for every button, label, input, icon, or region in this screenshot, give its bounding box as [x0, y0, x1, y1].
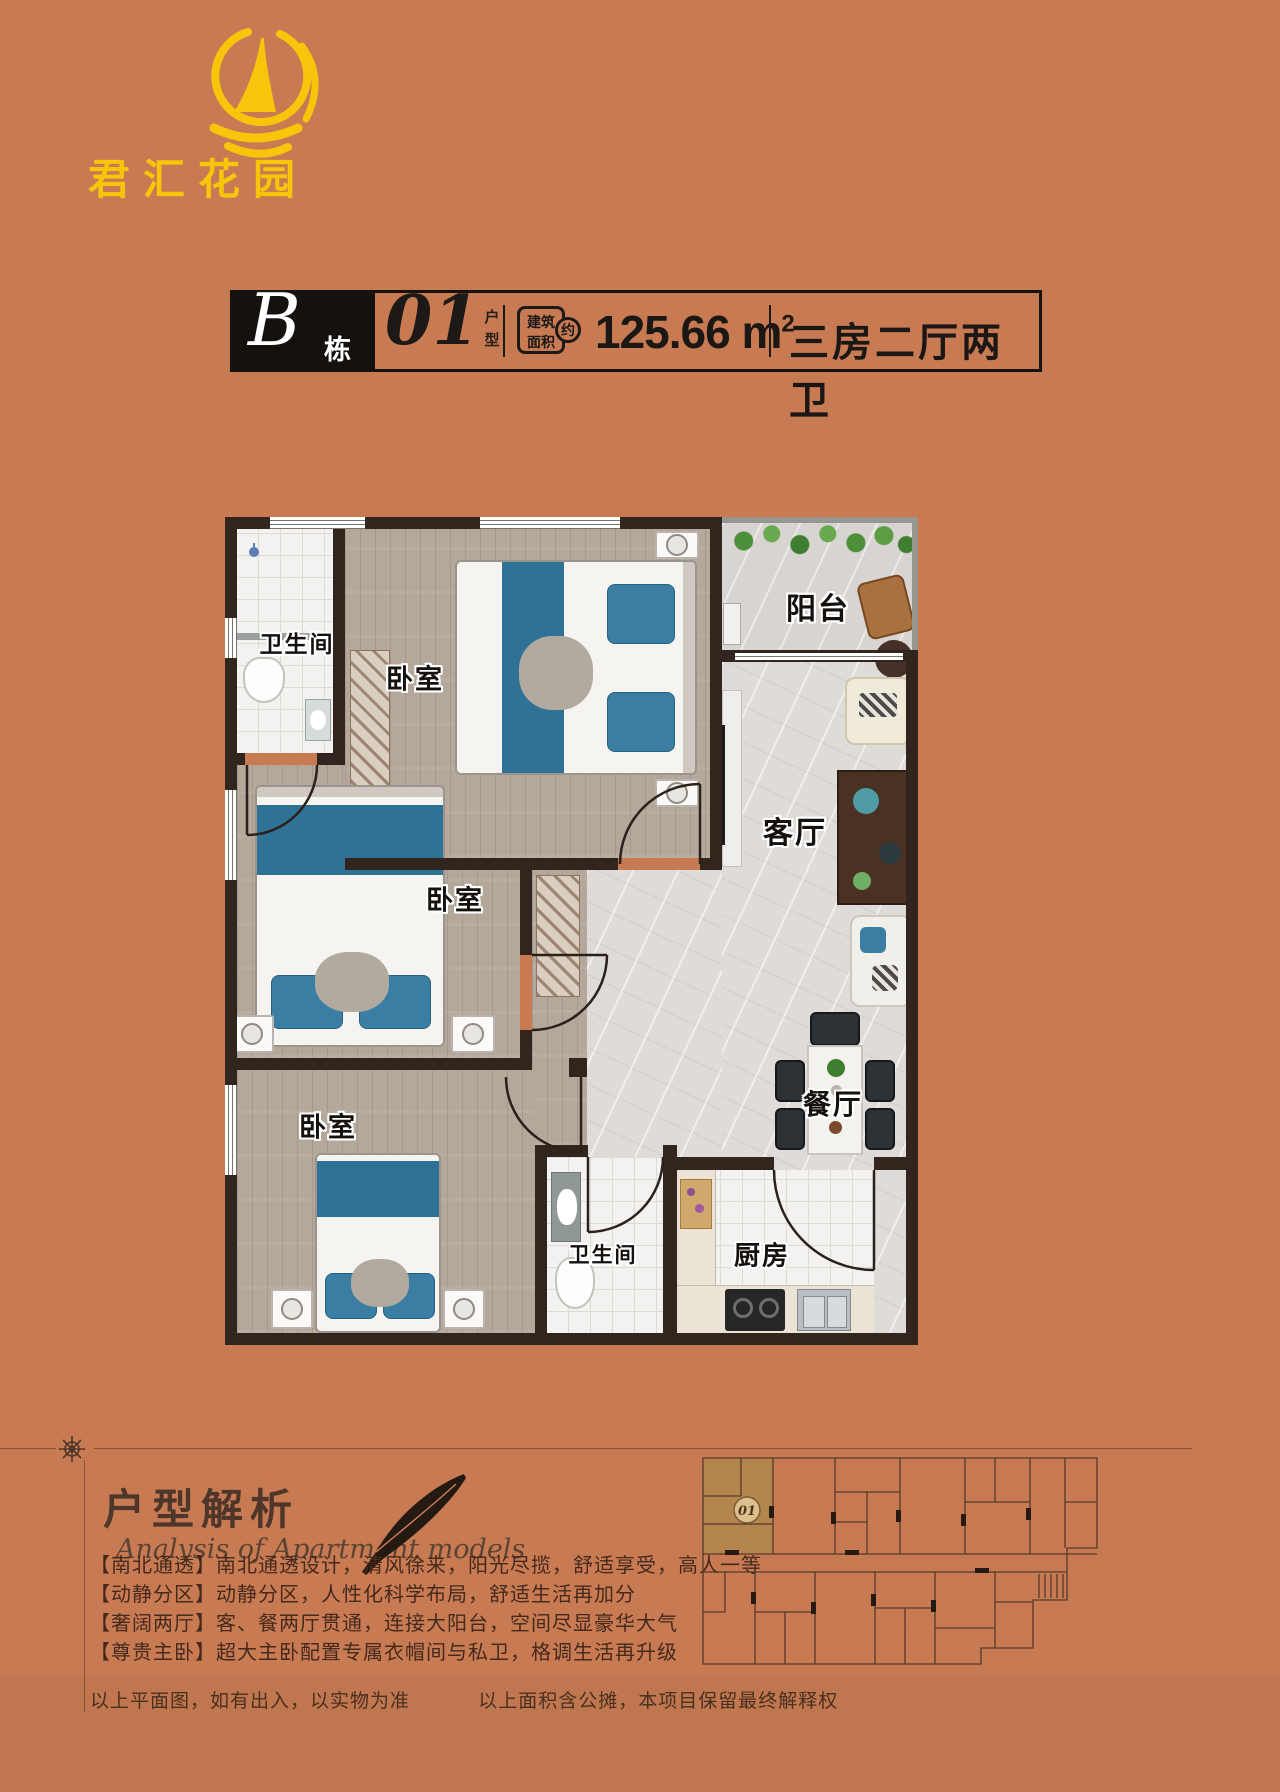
floor-plate-unit-number: 01 — [738, 1504, 756, 1519]
area-value: 125.66 m2 — [595, 305, 794, 359]
divider — [769, 305, 771, 357]
room-label-bedroom-3: 卧室 — [299, 1106, 357, 1145]
divider — [503, 305, 505, 357]
floor-plate-diagram: 01 — [695, 1452, 1107, 1670]
unit-title-bar: B 栋 01 户型 建筑 面积 约 125.66 m2 三房二厅两卫 — [230, 290, 1042, 372]
ornament-line-vertical — [84, 1460, 85, 1712]
ornament-line-left — [0, 1448, 56, 1449]
feature-item: 【动静分区】动静分区，人性化科学布局，舒适生活再加分 — [90, 1581, 762, 1610]
room-label-dining-room: 餐厅 — [803, 1083, 863, 1123]
unit-suffix: 户型 — [483, 307, 501, 352]
analysis-title: 户型解析 — [103, 1476, 299, 1537]
area-number: 125.66 — [595, 306, 730, 358]
room-label-bedroom-2: 卧室 — [426, 879, 484, 918]
logo-name: 君汇花园 — [88, 146, 308, 207]
feature-item: 【南北通透】南北通透设计，清风徐来，阳光尽揽，舒适享受，高人一等 — [90, 1552, 762, 1581]
building-block-badge: B 栋 — [232, 292, 375, 370]
room-label-bathroom-2: 卫生间 — [569, 1239, 638, 1269]
room-label-living-room: 客厅 — [763, 808, 827, 852]
sailboat-icon — [130, 24, 400, 164]
room-label-bedroom-1: 卧室 — [386, 658, 444, 697]
area-unit: m — [741, 306, 781, 358]
disclaimer-left: 以上平面图，如有出入，以实物为准 — [90, 1691, 410, 1712]
logo: 君汇花园 — [75, 24, 355, 224]
layout-text: 三房二厅两卫 — [789, 310, 1039, 426]
feature-list: 【南北通透】南北通透设计，清风徐来，阳光尽揽，舒适享受，高人一等 【动静分区】动… — [90, 1552, 762, 1668]
feature-item: 【尊贵主卧】超大主卧配置专属衣帽间与私卫，格调生活再升级 — [90, 1639, 762, 1668]
disclaimer-right: 以上面积含公摊，本项目保留最终解释权 — [478, 1691, 838, 1712]
room-label-kitchen: 厨房 — [734, 1236, 790, 1273]
ornament-line-right — [94, 1448, 1192, 1449]
approx-circle: 约 — [555, 317, 581, 343]
ship-wheel-icon — [58, 1435, 86, 1463]
unit-number: 01 — [385, 281, 480, 361]
room-label-bathroom-1: 卫生间 — [260, 625, 335, 659]
floor-plan: 卫生间 卧室 阳台 客厅 卧室 餐厅 卧室 卫生间 厨房 — [225, 517, 918, 1345]
poster-page: { "page": { "bg_color": "#c87b53", "acce… — [0, 0, 1280, 1792]
room-label-balcony: 阳台 — [786, 584, 850, 628]
building-suffix: 栋 — [324, 328, 351, 367]
feature-item: 【奢阔两厅】客、餐两厅贯通，连接大阳台，空间尽显豪华大气 — [90, 1610, 762, 1639]
disclaimer: 以上平面图，如有出入，以实物为准 以上面积含公摊，本项目保留最终解释权 — [90, 1686, 900, 1713]
building-letter: B — [248, 278, 301, 362]
